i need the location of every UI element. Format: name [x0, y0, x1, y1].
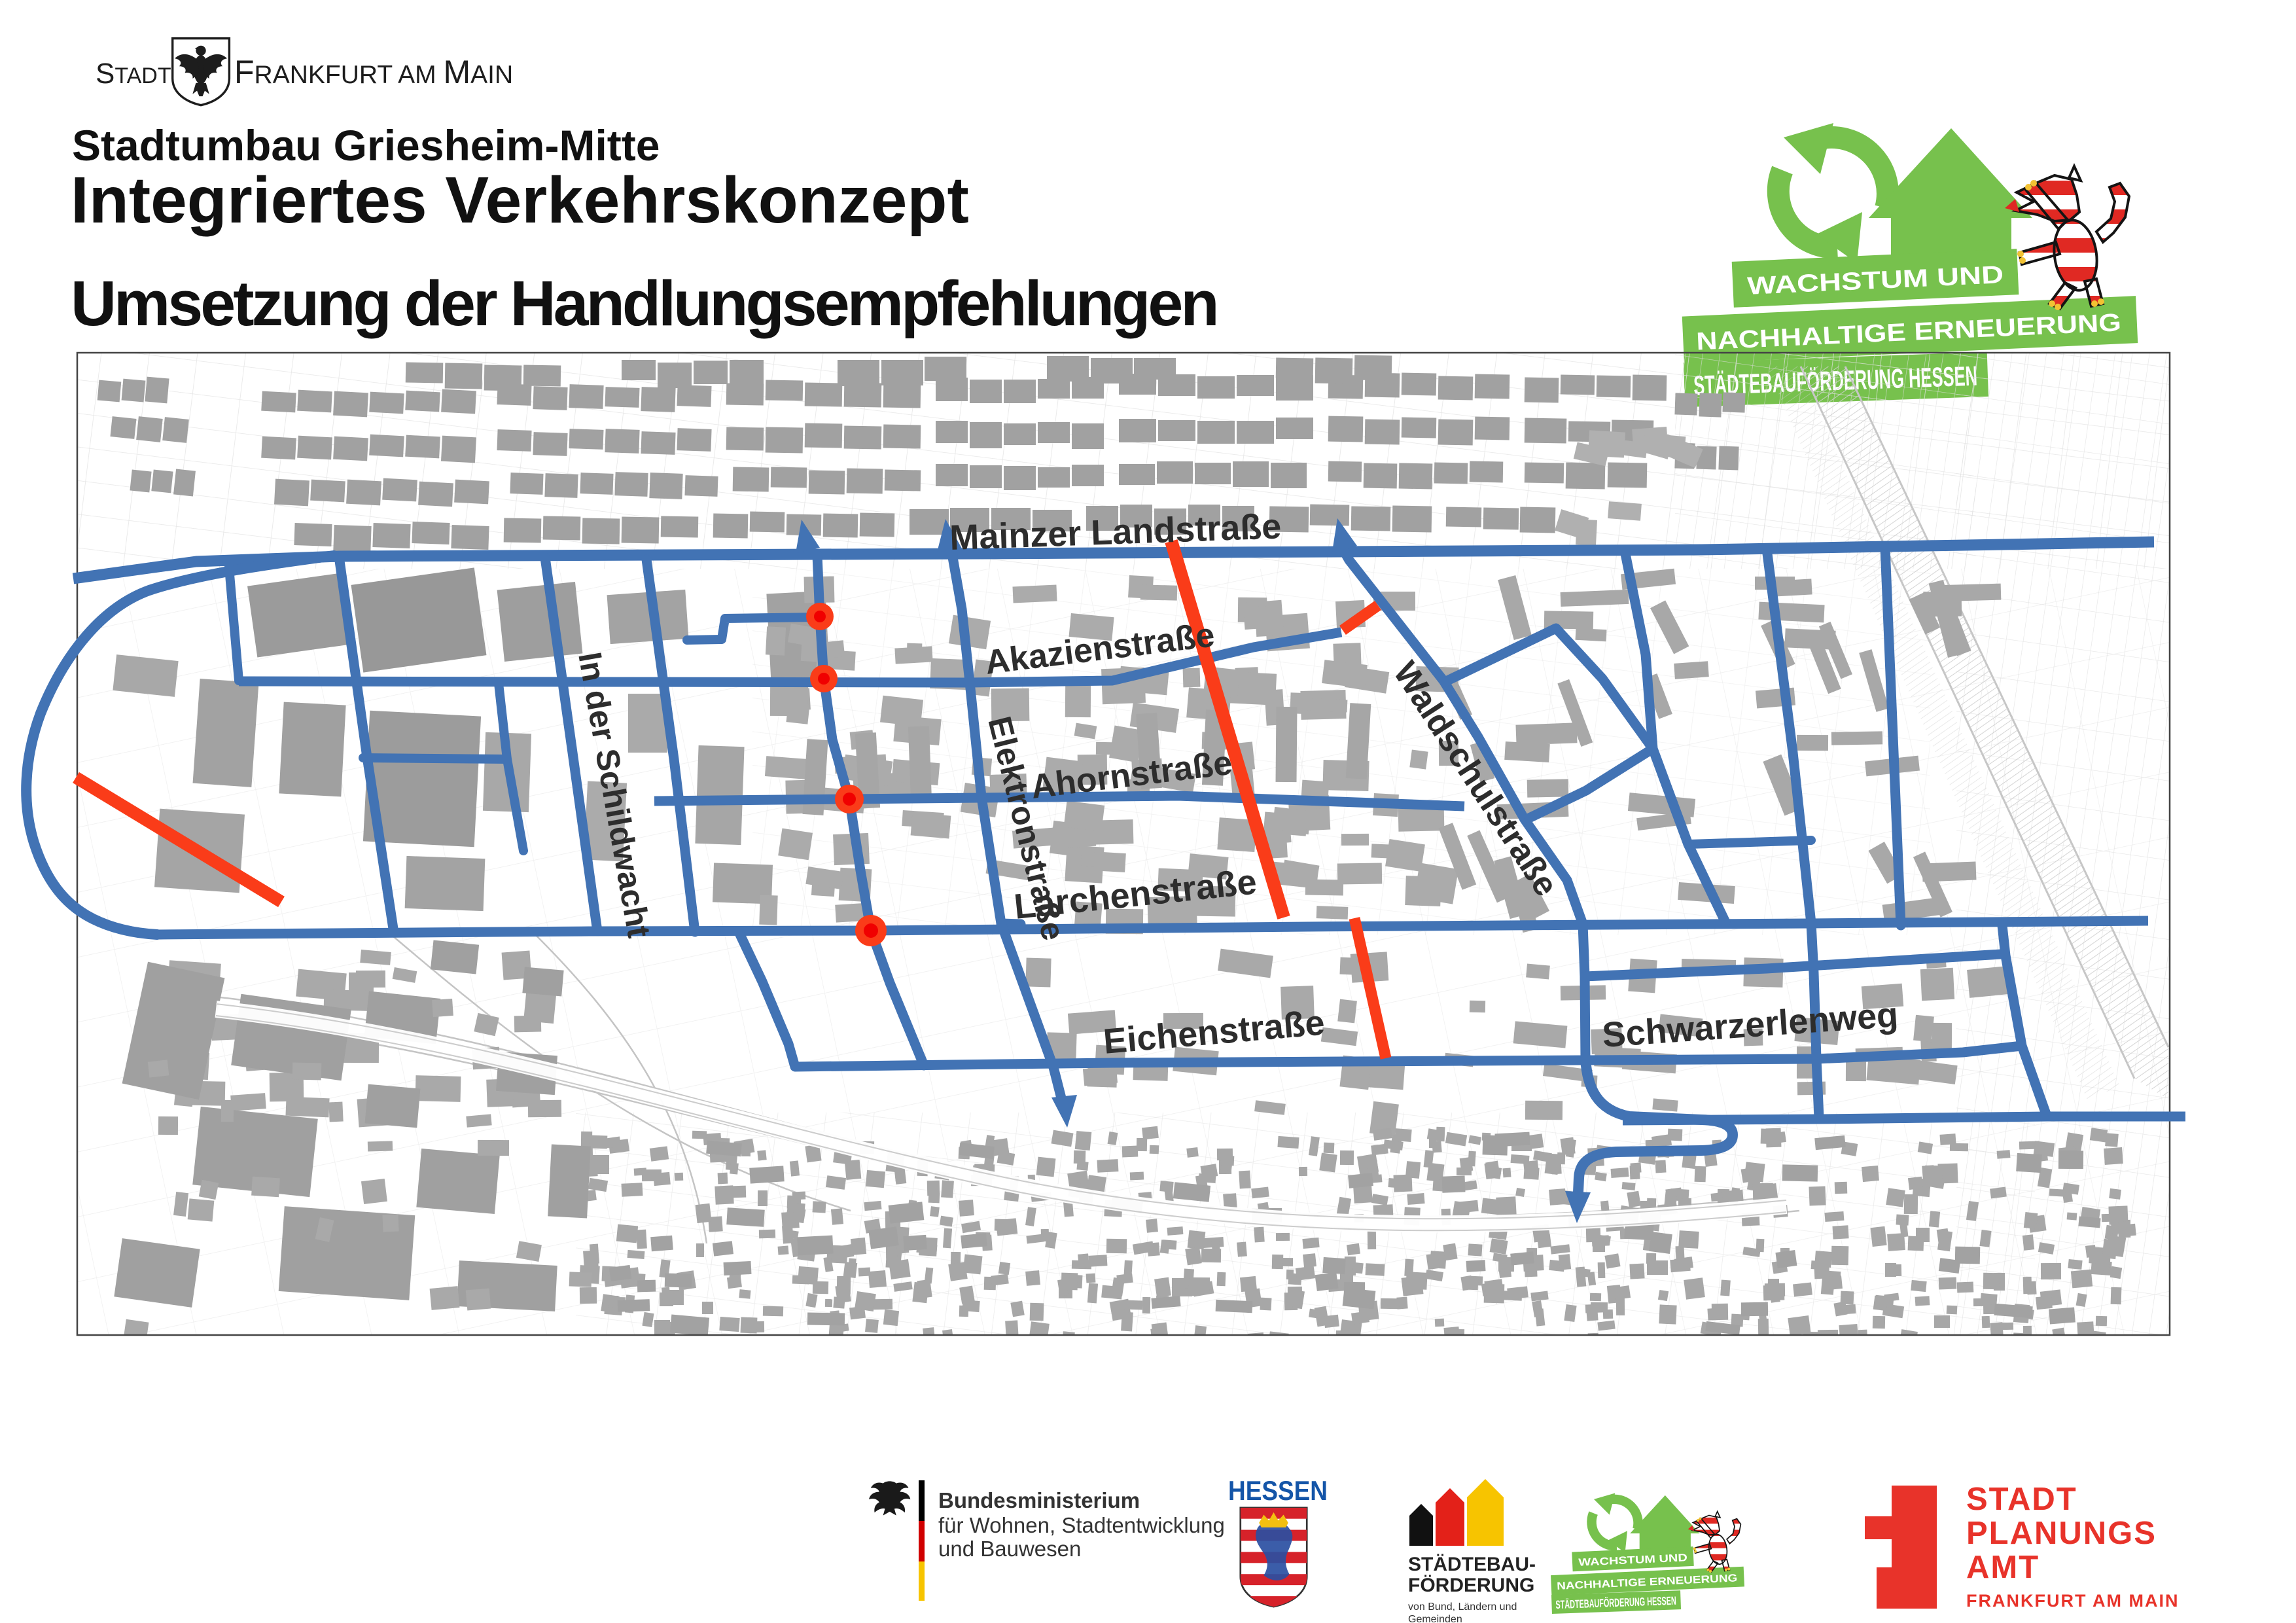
svg-text:Bundesministerium: Bundesministerium — [938, 1488, 1140, 1512]
svg-text:STÄDTEBAU-: STÄDTEBAU- — [1408, 1554, 1536, 1575]
svg-text:HESSEN: HESSEN — [1228, 1475, 1328, 1506]
svg-text:STADT: STADT — [1966, 1482, 2077, 1517]
svg-text:AMT: AMT — [1966, 1550, 2040, 1585]
svg-text:für Wohnen, Stadtentwicklung: für Wohnen, Stadtentwicklung — [938, 1513, 1225, 1537]
svg-text:Umsetzung der Handlungsempfehl: Umsetzung der Handlungsempfehlungen — [71, 268, 1217, 339]
svg-text:FRANKFURT AM MAIN: FRANKFURT AM MAIN — [1966, 1591, 2179, 1611]
svg-text:Gemeinden: Gemeinden — [1408, 1614, 1462, 1623]
svg-text:Integriertes Verkehrskonzept: Integriertes Verkehrskonzept — [71, 164, 969, 237]
svg-text:Stadtumbau Griesheim-Mitte: Stadtumbau Griesheim-Mitte — [72, 121, 660, 169]
svg-text:PLANUNGS: PLANUNGS — [1966, 1516, 2157, 1551]
svg-text:FÖRDERUNG: FÖRDERUNG — [1408, 1575, 1534, 1596]
svg-text:von Bund, Ländern und: von Bund, Ländern und — [1408, 1601, 1517, 1613]
svg-text:und Bauwesen: und Bauwesen — [938, 1537, 1081, 1561]
